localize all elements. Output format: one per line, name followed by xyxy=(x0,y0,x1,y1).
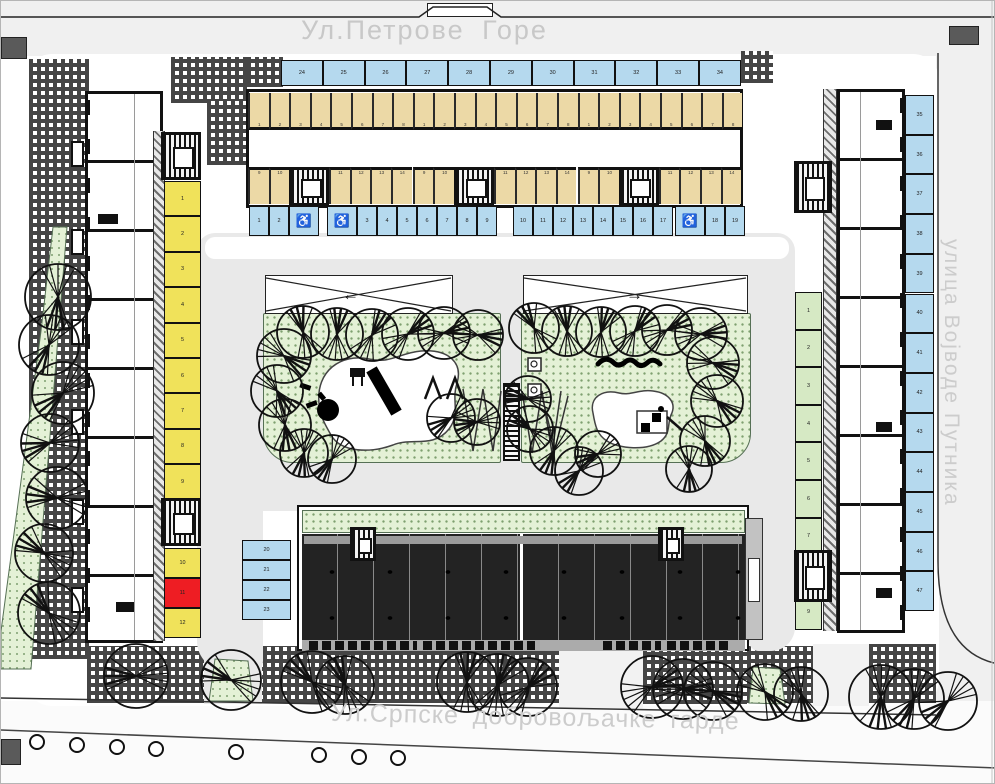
right-building-hatch xyxy=(823,89,837,631)
bottom-building-roof-walk xyxy=(304,536,742,544)
street-top-band xyxy=(1,1,995,56)
garage-ramp-left: ← xyxy=(265,275,453,314)
right-building-corridor xyxy=(860,92,861,630)
walkway-pergola xyxy=(503,383,520,461)
paving-top-garage-end xyxy=(247,57,283,87)
paving-bottom-1 xyxy=(87,646,303,703)
bath-fixture xyxy=(876,588,892,598)
right-building-windows xyxy=(900,98,905,628)
paving-topleft-court xyxy=(207,101,247,165)
bottom-building-glazing xyxy=(667,641,729,650)
bath-fixture xyxy=(876,120,892,130)
bath-fixture xyxy=(876,422,892,432)
paving-bottom-2 xyxy=(303,649,559,703)
bottom-building xyxy=(297,505,749,651)
bottom-building-glazing xyxy=(309,641,417,650)
corner-marker-bottomleft xyxy=(1,739,21,765)
paving-bottom-4 xyxy=(747,646,813,703)
lawn-left-playground xyxy=(263,313,501,463)
corner-marker-topright xyxy=(949,26,979,45)
bottom-building-glazing xyxy=(603,641,661,650)
ramp-lines xyxy=(266,275,452,314)
annex-door xyxy=(748,558,760,602)
top-street-median xyxy=(427,3,493,17)
bottom-building-glazing xyxy=(423,641,535,650)
left-building xyxy=(85,91,163,643)
road-left-leg xyxy=(197,471,263,671)
paving-topleft-plaza xyxy=(171,57,247,103)
left-building-hatch xyxy=(153,131,165,641)
paving-bottom-3 xyxy=(643,651,747,704)
garage-ramp-right: → xyxy=(523,275,748,314)
bottom-building-roof-vents xyxy=(303,549,743,637)
paving-bottom-5 xyxy=(869,644,936,703)
lawn-right-playground xyxy=(521,313,751,463)
driveway-exit-left xyxy=(204,646,262,704)
street-bottom-band xyxy=(1,701,995,784)
bath-fixture xyxy=(116,602,134,612)
paving-topright-patch xyxy=(741,51,773,83)
right-building xyxy=(837,89,905,633)
garage-building xyxy=(246,89,743,208)
ramp-arrow-left: ← xyxy=(342,286,359,303)
site-plan: ← → xyxy=(0,0,995,784)
street-right-band xyxy=(936,1,995,784)
bottom-building-green-roof-strip xyxy=(302,510,745,533)
ramp-arrow-right: → xyxy=(626,286,643,303)
bottom-building-annex xyxy=(745,518,763,640)
bath-fixture xyxy=(98,214,118,224)
driveway-exit-mid xyxy=(559,646,643,708)
left-building-windows xyxy=(85,100,90,638)
court-front-walk xyxy=(205,237,789,259)
driveway-exit-right xyxy=(813,644,869,706)
left-building-corridor xyxy=(134,94,135,640)
paving-left-strip xyxy=(29,59,89,659)
corner-marker-topleft xyxy=(1,37,27,59)
